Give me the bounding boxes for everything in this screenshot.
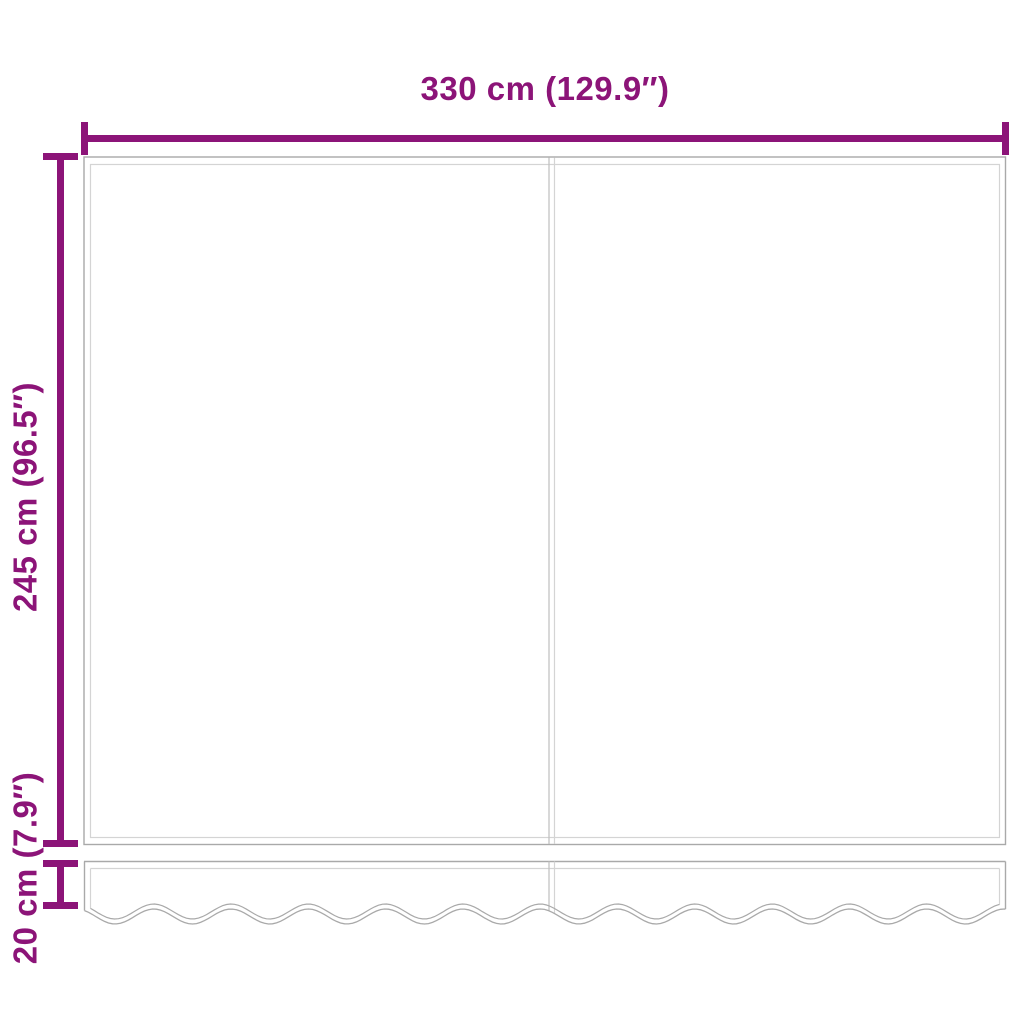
width-dimension-line [84,135,1006,142]
height-dimension-tick-bottom [43,840,78,847]
awning-fabric-drawing [0,0,1024,1024]
dimension-diagram: 330 cm (129.9″) 245 cm (96.5″) 20 cm (7.… [0,0,1024,1024]
valance-height-dimension-line [57,864,64,906]
valance-height-dimension-tick-top [43,860,78,867]
main-panel-inner-stitch-line [91,165,1000,838]
height-dimension-tick-top [43,153,78,160]
height-dimension-label: 245 cm (96.5″) [9,382,42,612]
valance-height-dimension-tick-bottom [43,902,78,909]
height-dimension-line [57,157,64,844]
width-dimension-tick-right [1002,122,1009,155]
valance-hem-inner-wave [91,904,1000,919]
width-dimension-label: 330 cm (129.9″) [85,72,1005,105]
valance-height-dimension-label: 20 cm (7.9″) [9,772,42,964]
width-dimension-tick-left [81,122,88,155]
main-panel-outline [84,157,1006,845]
